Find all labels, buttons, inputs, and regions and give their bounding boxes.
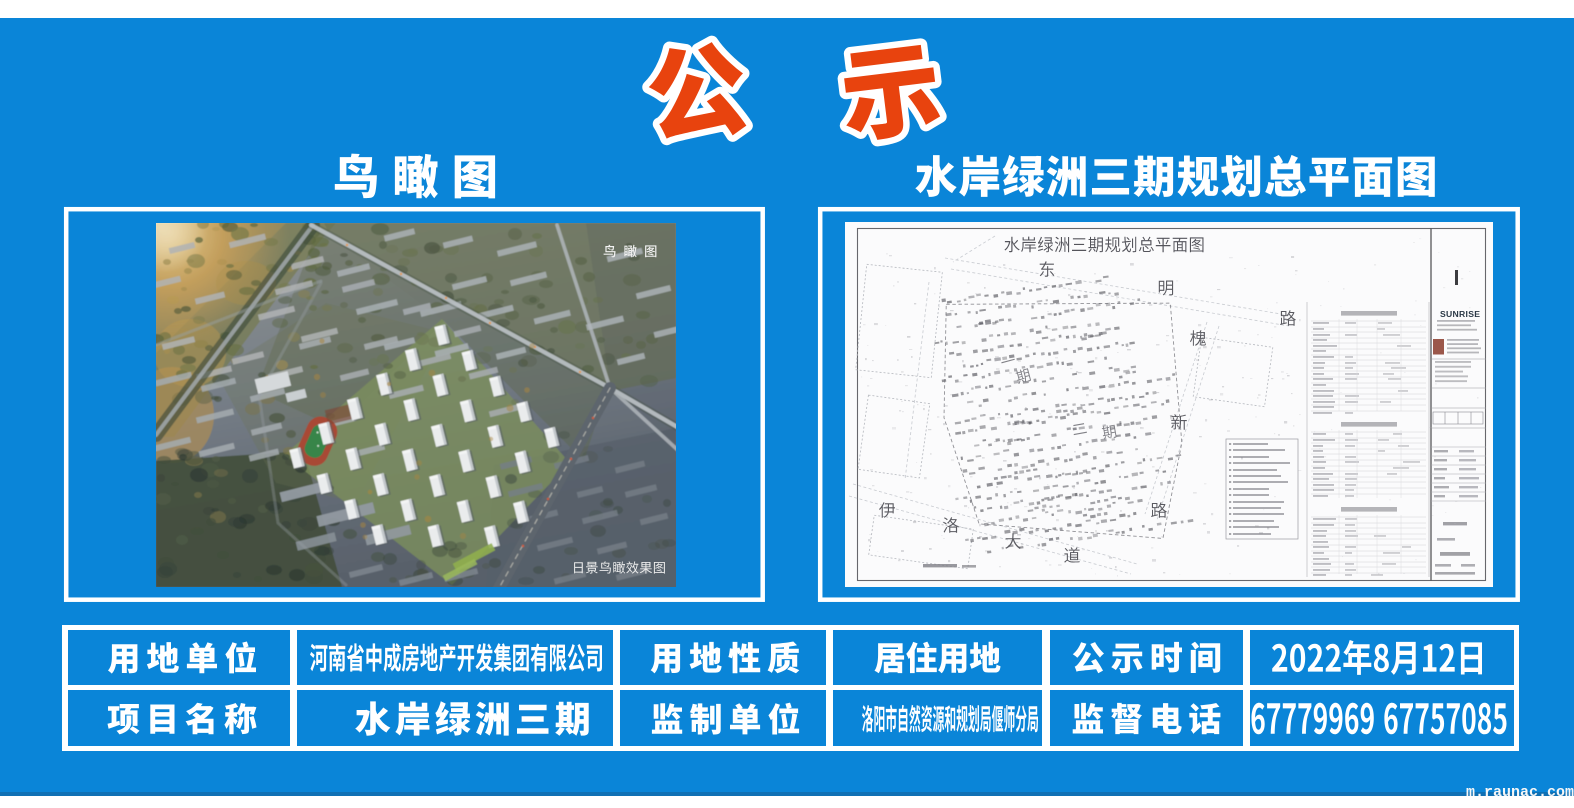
svg-text:SUNRISE: SUNRISE <box>1440 309 1480 319</box>
svg-text:m.raunac.com: m.raunac.com <box>1466 784 1574 801</box>
